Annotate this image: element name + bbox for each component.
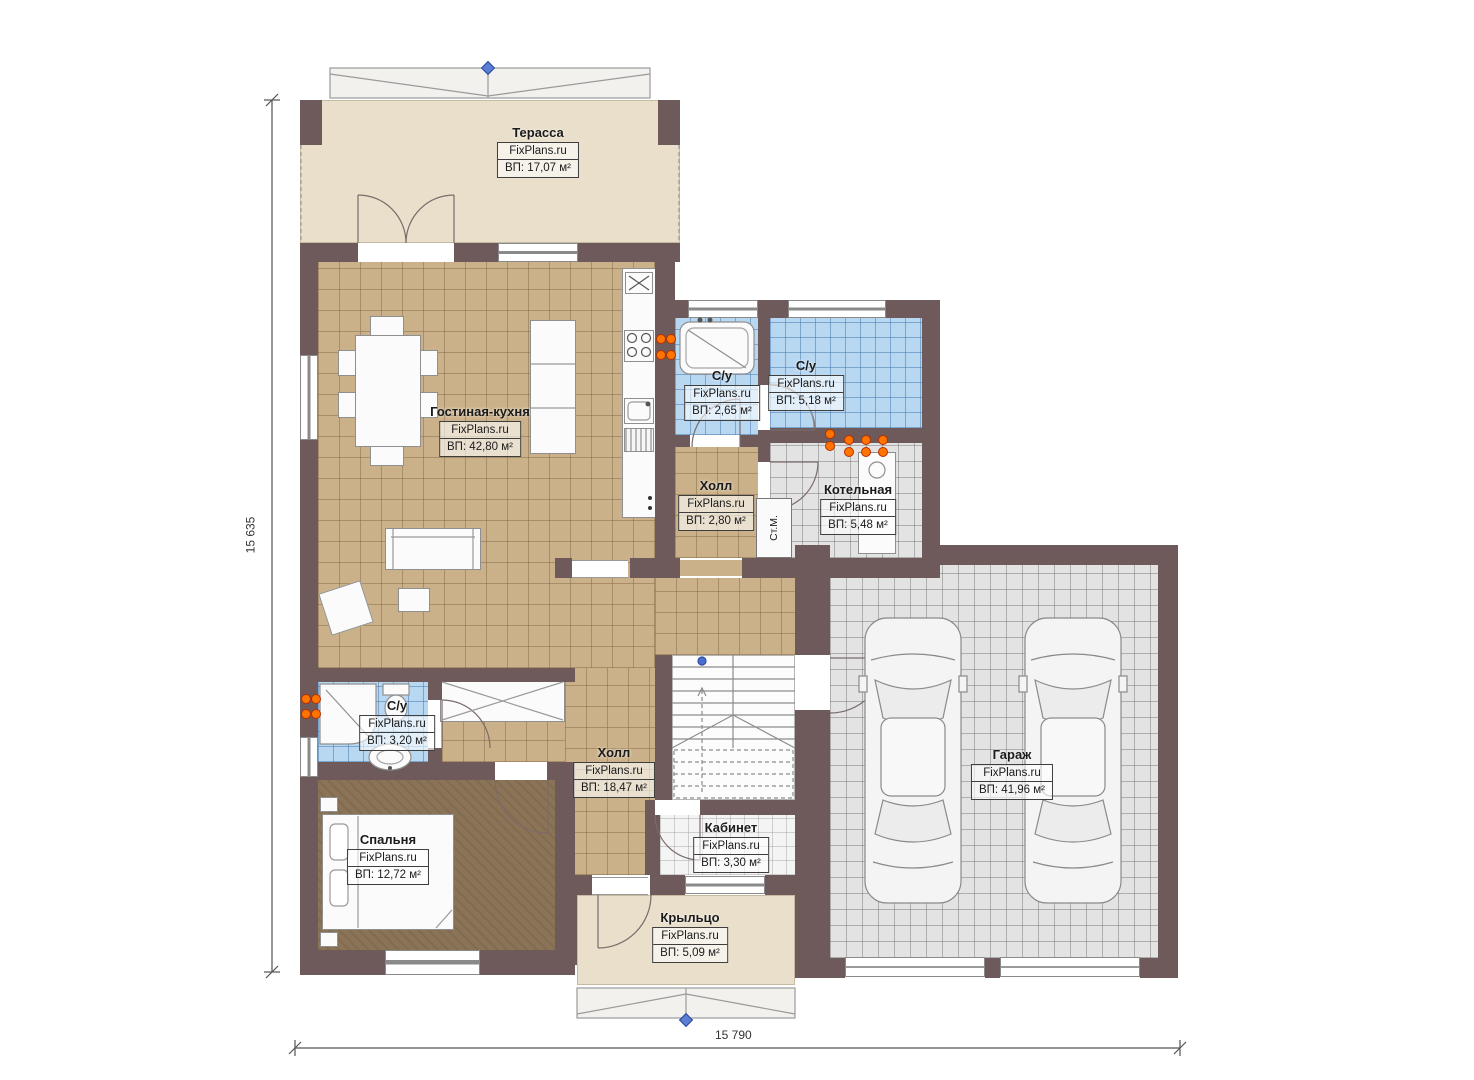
nightstand <box>320 797 338 812</box>
wall <box>922 318 940 578</box>
wall <box>675 435 690 447</box>
wall <box>318 668 575 682</box>
wall <box>795 710 830 978</box>
room-name: С/у <box>359 698 435 713</box>
room-area: ВП: 5,48 м² <box>821 517 895 533</box>
watermark: FixPlans.ru <box>821 500 895 517</box>
room-label-hall-main: Холл FixPlans.ru ВП: 18,47 м² <box>573 745 655 798</box>
wall <box>300 440 318 737</box>
watermark: FixPlans.ru <box>769 376 843 393</box>
wall <box>645 800 655 815</box>
watermark: FixPlans.ru <box>574 763 654 780</box>
dishwasher <box>624 428 654 452</box>
wall <box>655 243 675 560</box>
room-label-boiler-room: Котельная FixPlans.ru ВП: 5,48 м² <box>820 482 896 535</box>
window <box>300 355 318 440</box>
wall <box>765 875 795 895</box>
room-label-bathroom-3: С/у FixPlans.ru ВП: 3,20 м² <box>359 698 435 751</box>
kitchen-sink <box>625 272 653 294</box>
room-area: ВП: 2,65 м² <box>685 403 759 419</box>
wall <box>555 558 572 578</box>
chair <box>420 350 438 376</box>
wall <box>300 100 322 145</box>
coffee-table <box>398 588 430 612</box>
floor-hall-upper <box>655 578 795 655</box>
washing-machine: Ст.М. <box>756 498 792 558</box>
chair <box>370 316 404 336</box>
room-name: Холл <box>678 478 754 493</box>
room-area: ВП: 3,20 м² <box>360 733 434 749</box>
wardrobe <box>440 680 565 722</box>
wall <box>650 875 685 895</box>
room-label-bedroom: Спальня FixPlans.ru ВП: 12,72 м² <box>347 832 429 885</box>
opening-hall <box>680 560 742 576</box>
window <box>688 300 758 318</box>
watermark: FixPlans.ru <box>440 422 520 439</box>
wall <box>830 958 845 978</box>
room-label-bathroom-2: С/у FixPlans.ru ВП: 5,18 м² <box>768 358 844 411</box>
wall <box>547 762 575 780</box>
wall <box>740 435 758 447</box>
room-name: С/у <box>684 368 760 383</box>
wall <box>1140 958 1178 978</box>
porch-roof <box>577 988 795 1026</box>
room-name: Холл <box>573 745 655 760</box>
watermark: FixPlans.ru <box>685 386 759 403</box>
kitchen-island <box>530 320 576 454</box>
opening-threshold <box>572 560 628 578</box>
room-name: Гостиная-кухня <box>430 404 530 419</box>
stove <box>624 330 654 362</box>
room-label-hall-small: Холл FixPlans.ru ВП: 2,80 м² <box>678 478 754 531</box>
wall <box>454 243 498 262</box>
room-name: С/у <box>768 358 844 373</box>
window <box>788 300 886 318</box>
wall <box>700 800 795 815</box>
room-area: ВП: 2,80 м² <box>679 513 753 529</box>
wall <box>935 545 1178 565</box>
wall <box>758 300 788 318</box>
wall <box>655 300 688 318</box>
room-area: ВП: 17,07 м² <box>498 160 578 176</box>
floor-plan: Ст.М. <box>0 0 1474 1080</box>
watermark: FixPlans.ru <box>498 143 578 160</box>
floor-hall-closet <box>442 722 565 762</box>
room-name: Терасса <box>497 125 579 140</box>
room-area: ВП: 42,80 м² <box>440 439 520 455</box>
room-name: Крыльцо <box>652 910 728 925</box>
watermark: FixPlans.ru <box>348 850 428 867</box>
dimension-width: 15 790 <box>715 1028 752 1042</box>
wall <box>300 243 358 262</box>
chair <box>338 350 356 376</box>
room-label-terrace: Терасса FixPlans.ru ВП: 17,07 м² <box>497 125 579 178</box>
floor-terrace <box>300 100 680 243</box>
wall <box>630 558 680 578</box>
watermark: FixPlans.ru <box>360 716 434 733</box>
entrance-threshold <box>592 877 648 895</box>
sofa <box>385 528 481 570</box>
wall <box>655 655 672 800</box>
wall <box>300 777 318 975</box>
window <box>300 737 318 777</box>
room-name: Котельная <box>820 482 896 497</box>
room-area: ВП: 18,47 м² <box>574 780 654 796</box>
wall <box>770 428 922 443</box>
room-area: ВП: 41,96 м² <box>972 782 1052 798</box>
room-label-living-kitchen: Гостиная-кухня FixPlans.ru ВП: 42,80 м² <box>430 404 530 457</box>
window <box>385 950 480 975</box>
room-area: ВП: 3,30 м² <box>694 855 768 871</box>
room-area: ВП: 12,72 м² <box>348 867 428 883</box>
garage-door <box>845 957 985 977</box>
wall <box>300 262 318 355</box>
wall <box>318 762 495 780</box>
wall <box>795 545 830 655</box>
chair <box>338 392 356 418</box>
room-area: ВП: 5,09 м² <box>653 945 727 961</box>
window <box>685 876 765 894</box>
wall <box>560 875 592 895</box>
window <box>498 243 578 262</box>
wall <box>645 815 660 875</box>
wall <box>742 558 940 578</box>
wall <box>658 100 680 145</box>
washing-machine-label: Ст.М. <box>768 515 780 541</box>
chair <box>370 446 404 466</box>
sink <box>624 398 654 424</box>
floor-stairs <box>672 655 795 800</box>
wall <box>985 958 1000 978</box>
wall <box>758 430 770 462</box>
dining-table <box>355 335 421 447</box>
room-label-bathroom-1: С/у FixPlans.ru ВП: 2,65 м² <box>684 368 760 421</box>
watermark: FixPlans.ru <box>694 838 768 855</box>
nightstand <box>320 932 338 947</box>
watermark: FixPlans.ru <box>972 765 1052 782</box>
room-name: Кабинет <box>693 820 769 835</box>
watermark: FixPlans.ru <box>679 496 753 513</box>
room-name: Спальня <box>347 832 429 847</box>
room-name: Гараж <box>971 747 1053 762</box>
garage-door <box>1000 957 1140 977</box>
room-label-cabinet: Кабинет FixPlans.ru ВП: 3,30 м² <box>693 820 769 873</box>
dimension-height: 15 635 <box>243 517 257 554</box>
wall <box>1158 545 1178 978</box>
watermark: FixPlans.ru <box>653 928 727 945</box>
wall <box>886 300 940 318</box>
room-label-garage: Гараж FixPlans.ru ВП: 41,96 м² <box>971 747 1053 800</box>
room-area: ВП: 5,18 м² <box>769 393 843 409</box>
wall <box>560 895 577 965</box>
room-label-porch: Крыльцо FixPlans.ru ВП: 5,09 м² <box>652 910 728 963</box>
kitchen-counter <box>622 268 656 518</box>
wall <box>300 950 385 975</box>
